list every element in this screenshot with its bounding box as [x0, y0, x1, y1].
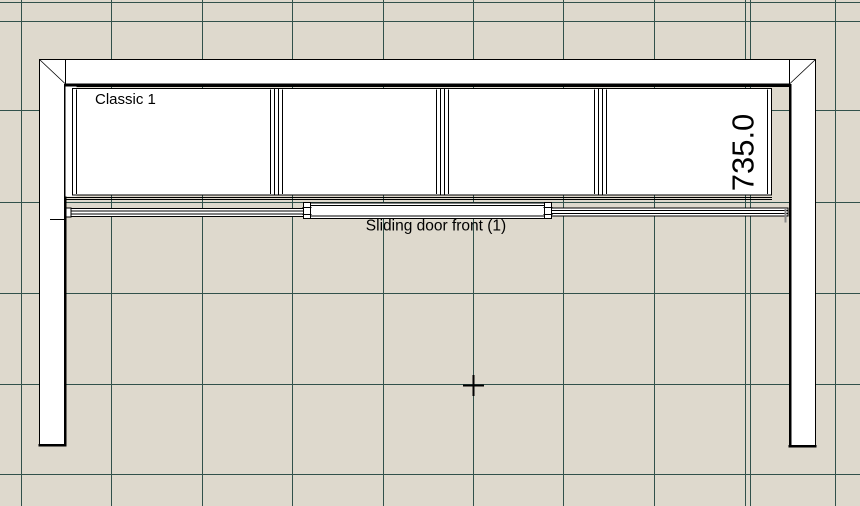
top-back-panel[interactable]: [40, 60, 816, 85]
door-track-left[interactable]: [66, 209, 309, 217]
door-end-bracket-right: [545, 203, 552, 219]
door-track-right[interactable]: [546, 208, 789, 216]
track-end-cap-left: [66, 208, 71, 217]
cabinet-boxes[interactable]: [66, 87, 773, 200]
right-side-panel[interactable]: [790, 60, 816, 447]
cabinet-section-3[interactable]: [445, 89, 599, 196]
cabinet-section-2[interactable]: [279, 89, 441, 196]
left-side-panel[interactable]: [40, 60, 66, 447]
door-end-bracket-left: [304, 203, 311, 219]
sliding-door-label: Sliding door front (1): [366, 218, 506, 235]
cad-drawing-viewport[interactable]: Classic 1 735.0 Sliding door front (1): [0, 0, 860, 506]
cabinet-name-label: Classic 1: [95, 91, 156, 108]
width-dimension-label: 735.0: [726, 114, 761, 192]
